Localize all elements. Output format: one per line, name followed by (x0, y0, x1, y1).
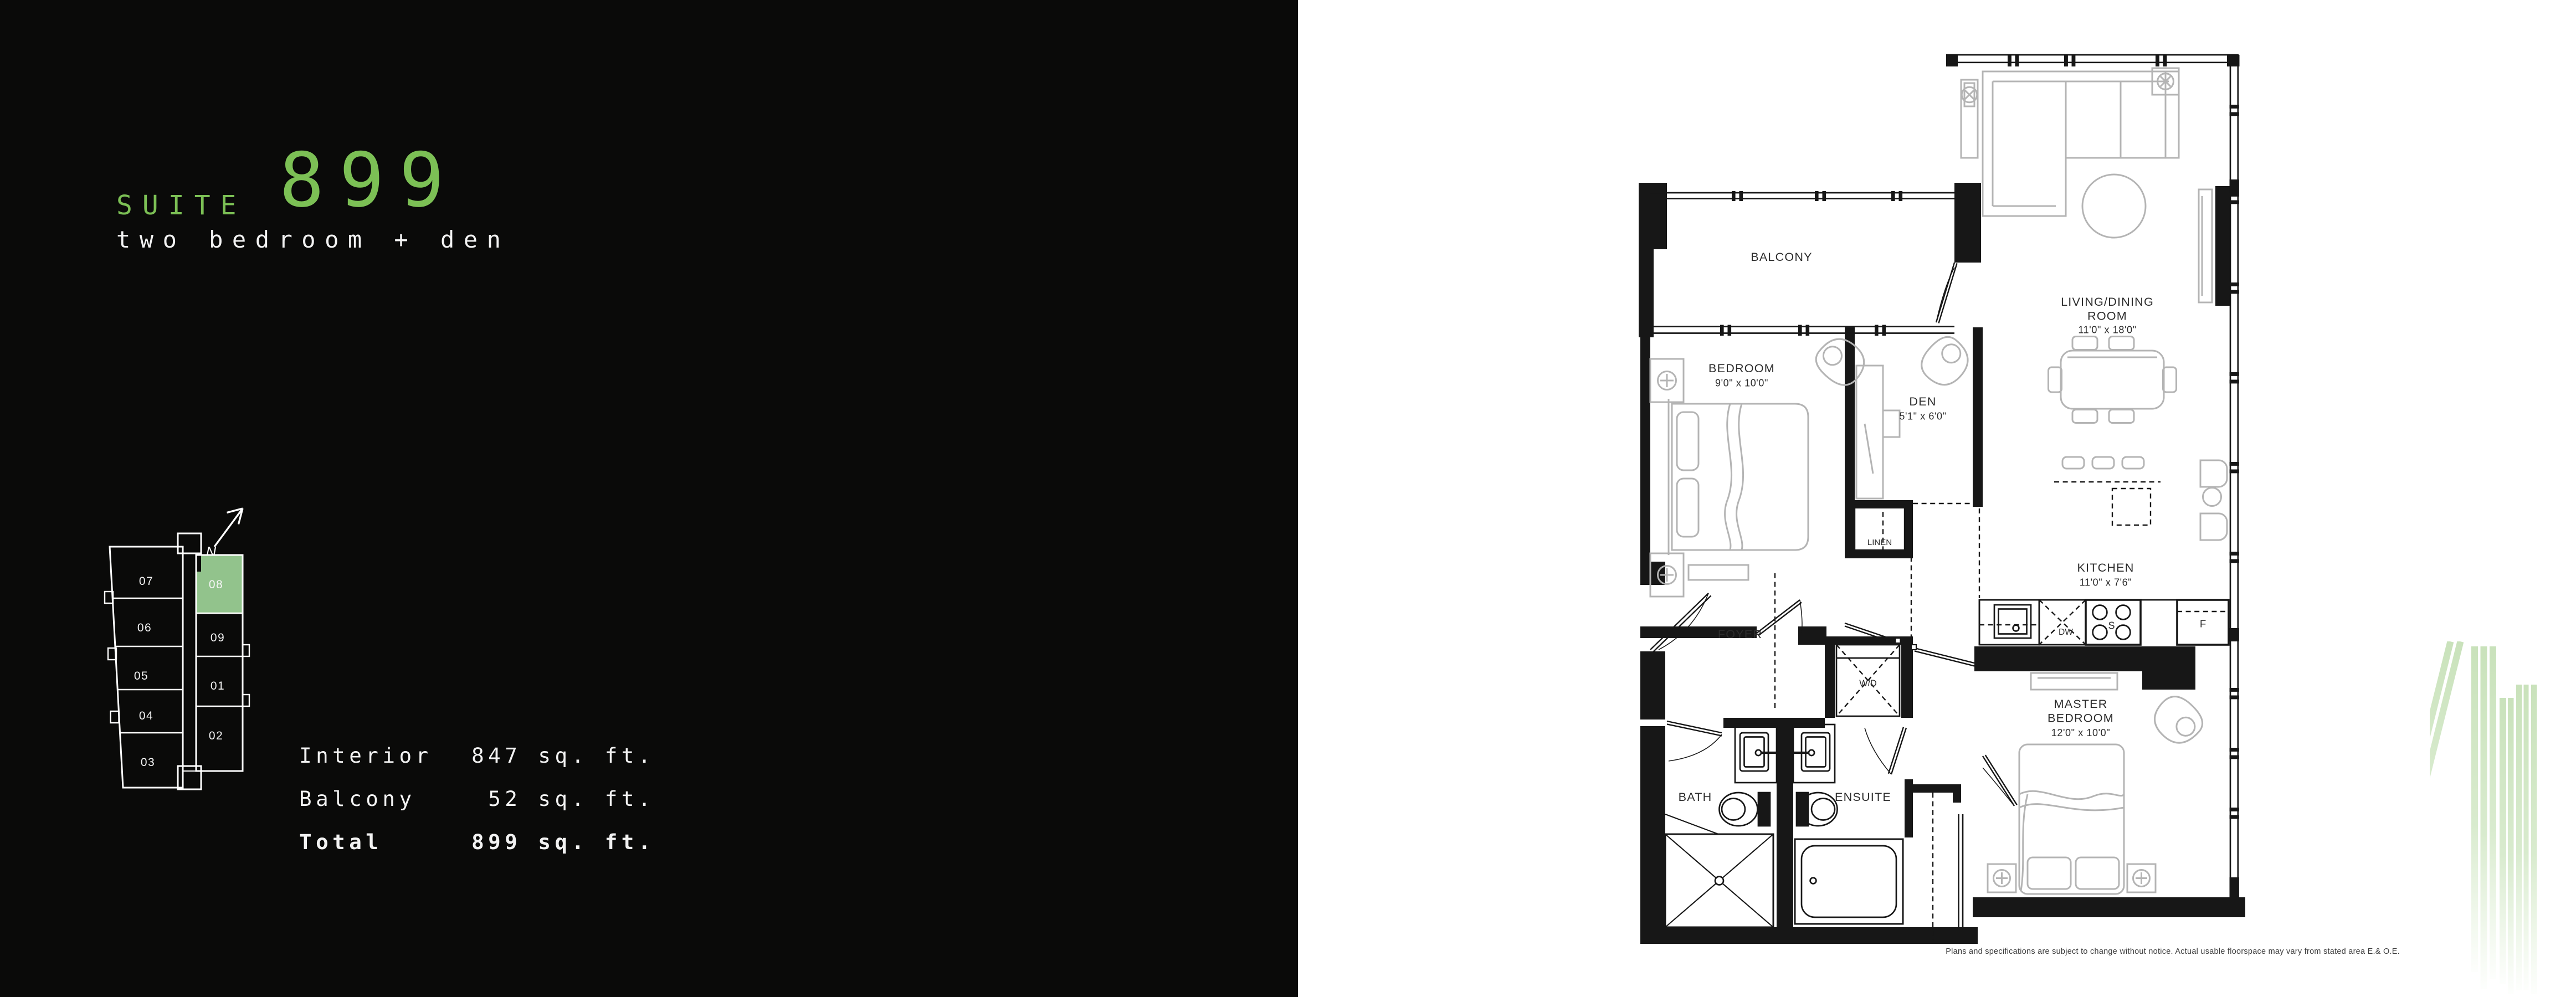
label-master-1: MASTER (2054, 697, 2107, 711)
unit-01: 01 (211, 680, 225, 692)
keyplan: N 07 06 05 04 03 0 (91, 490, 291, 906)
label-foyer: FOYER (1718, 627, 1762, 641)
dims-master: 12'0" x 10'0" (2051, 727, 2111, 738)
area-label: Total (299, 829, 382, 854)
label-ensuite: ENSUITE (1835, 790, 1891, 804)
dims-kitchen: 11'0" x 7'6" (2080, 577, 2132, 588)
unit-05: 05 (134, 670, 148, 682)
unit-09: 09 (211, 631, 225, 644)
label-living-1: LIVING/DINING (2061, 295, 2154, 309)
area-label: Balcony (299, 786, 416, 811)
label-kitchen: KITCHEN (2077, 561, 2134, 574)
walls (1639, 55, 2245, 944)
label-den: DEN (1909, 394, 1936, 408)
area-table: Interior 847 sq. ft. Balcony 52 sq. ft. … (299, 743, 655, 872)
unit-08: 08 (209, 578, 223, 591)
disclaimer-text: Plans and specifications are subject to … (1946, 949, 2400, 957)
unit-06: 06 (137, 621, 152, 634)
suite-label: SUITE (116, 189, 247, 221)
label-living-2: ROOM (2087, 309, 2127, 323)
dims-den: 5'1" x 6'0" (1899, 411, 1946, 422)
suite-subtitle: two bedroom + den (116, 228, 510, 254)
label-dw: DW (2059, 628, 2073, 637)
keyplan-dividers (105, 592, 249, 733)
label-bedroom: BEDROOM (1708, 361, 1775, 375)
area-row-balcony: Balcony 52 sq. ft. (299, 786, 655, 811)
area-value: 847 sq. ft. (471, 743, 655, 768)
unit-04: 04 (139, 710, 153, 722)
decor-green-lines (2430, 641, 2576, 997)
dims-bedroom: 9'0" x 10'0" (1715, 378, 1768, 389)
north-arrow (214, 508, 243, 547)
label-master-2: BEDROOM (2048, 711, 2114, 725)
label-linen: LINEN (1867, 538, 1892, 547)
left-panel: SUITE 899 two bedroom + den N (0, 0, 1298, 997)
dims-living: 11'0" x 18'0" (2078, 325, 2136, 336)
unit-02: 02 (209, 729, 223, 742)
floorplan: BALCONY LIVING/DINING ROOM 11'0" x 18'0"… (1629, 42, 2260, 964)
unit-03: 03 (141, 756, 155, 769)
decor-bars (2430, 641, 2537, 994)
label-bath: BATH (1679, 790, 1712, 804)
area-value: 899 sq. ft. (471, 829, 655, 854)
suite-number: 899 (279, 143, 459, 218)
area-row-total: Total 899 sq. ft. (299, 829, 655, 854)
area-label: Interior (299, 743, 433, 768)
area-row-interior: Interior 847 sq. ft. (299, 743, 655, 768)
page: SUITE 899 two bedroom + den N (0, 0, 2576, 997)
window-walls (1650, 55, 2239, 897)
label-stove: S (2108, 620, 2115, 631)
label-wd: W/D (1859, 679, 1876, 688)
label-balcony: BALCONY (1751, 250, 1813, 264)
unit-07: 07 (139, 575, 153, 588)
label-fridge: F (2200, 618, 2206, 630)
dashed-lines (1775, 482, 2229, 941)
area-value: 52 sq. ft. (488, 786, 655, 811)
